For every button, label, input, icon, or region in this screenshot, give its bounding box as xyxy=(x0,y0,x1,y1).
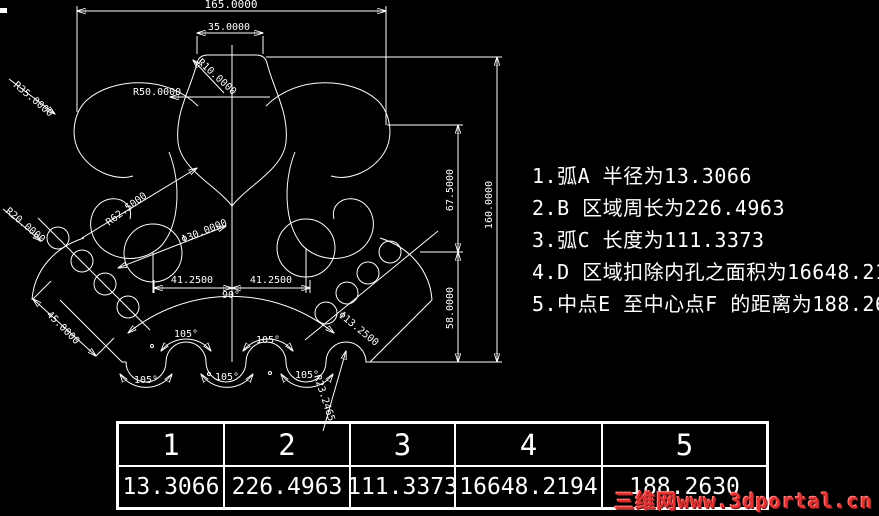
table-header-cell: 5 xyxy=(602,423,767,466)
dim-4125-right: 41.2500 xyxy=(232,275,310,293)
table-value-cell: 226.4963 xyxy=(224,466,350,508)
screen-artifact xyxy=(0,8,7,13)
note-line-1: 1.弧A 半径为13.3066 xyxy=(532,160,879,192)
dimensions: 165.0000 35.0000 R10.0000 R50.0000 xyxy=(3,0,502,431)
table-value-cell: 16648.2194 xyxy=(455,466,602,508)
dim-r20: R20.0000 xyxy=(3,206,47,245)
left-scroll xyxy=(32,83,198,300)
table-header-cell: 4 xyxy=(455,423,602,466)
point-marker xyxy=(208,373,211,376)
note-line-2: 2.B 区域周长为226.4963 xyxy=(532,192,879,224)
dim-d30: Φ30.0000 xyxy=(118,218,229,268)
dim-35: 35.0000 xyxy=(197,22,263,54)
dim-4125-left: 41.2500 xyxy=(154,275,232,293)
table-value-cell: 111.3373 xyxy=(350,466,455,508)
dim-35-label: 35.0000 xyxy=(208,22,250,33)
point-marker xyxy=(269,372,272,375)
dim-58: 58.0000 xyxy=(445,252,458,362)
dim-4125-right-label: 41.2500 xyxy=(250,275,292,286)
dim-r10: R10.0000 xyxy=(193,57,238,97)
dim-105-label: 105° xyxy=(256,335,280,346)
watermark: 三维网www.3dportal.cn xyxy=(614,485,873,514)
dim-45-label: 45.0000 xyxy=(44,309,82,347)
dim-r23: R23.2465 xyxy=(311,351,346,431)
dim-105-label: 105° xyxy=(134,375,158,386)
dim-105-label: 105° xyxy=(174,329,198,340)
dim-90: 90° xyxy=(128,290,334,333)
right-scroll xyxy=(266,83,432,300)
table-header-cell: 1 xyxy=(118,423,224,466)
dim-r50: R50.0000 xyxy=(133,87,270,98)
dim-d30-label: Φ30.0000 xyxy=(180,218,229,246)
dim-45: 45.0000 xyxy=(33,281,114,356)
dim-extension-lines xyxy=(266,57,502,362)
dim-4125-left-label: 41.2500 xyxy=(171,275,213,286)
right-small-holes xyxy=(305,231,438,340)
annotation-notes: 1.弧A 半径为13.3066 2.B 区域周长为226.4963 3.弧C 长… xyxy=(532,160,879,320)
dim-r62-label: R62.5000 xyxy=(104,191,149,229)
dim-105-group: 105° 105° 105° 105° 105° xyxy=(120,329,333,387)
dim-105-label: 105° xyxy=(295,370,319,381)
note-line-3: 3.弧C 长度为111.3373 xyxy=(532,224,879,256)
dim-160: 160.0000 xyxy=(484,57,497,362)
table-header-cell: 2 xyxy=(224,423,350,466)
dim-675-label: 67.5000 xyxy=(445,169,456,211)
dim-r35-label: R35.0000 xyxy=(11,80,55,119)
table-header-cell: 3 xyxy=(350,423,455,466)
dim-105-label: 105° xyxy=(215,372,239,383)
dim-675: 67.5000 xyxy=(445,125,458,252)
part-outline xyxy=(32,45,438,382)
dim-d13: Φ13.2500 xyxy=(336,310,380,349)
dim-r20-label: R20.0000 xyxy=(3,206,47,245)
table-value-cell: 13.3066 xyxy=(118,466,224,508)
dim-r35: R35.0000 xyxy=(9,79,55,119)
dim-r50-label: R50.0000 xyxy=(133,87,181,98)
dim-d13-label: Φ13.2500 xyxy=(336,310,380,349)
dim-58-label: 58.0000 xyxy=(445,287,456,329)
note-line-4: 4.D 区域扣除内孔之面积为16648.2194 xyxy=(532,256,879,288)
note-line-5: 5.中点E 至中心点F 的距离为188.2630 xyxy=(532,288,879,320)
dim-160-label: 160.0000 xyxy=(484,181,495,229)
dim-165-label: 165.0000 xyxy=(205,0,258,11)
point-marker xyxy=(151,345,154,348)
cad-viewport: 165.0000 35.0000 R10.0000 R50.0000 xyxy=(0,0,879,516)
dim-90-label: 90° xyxy=(222,290,240,301)
